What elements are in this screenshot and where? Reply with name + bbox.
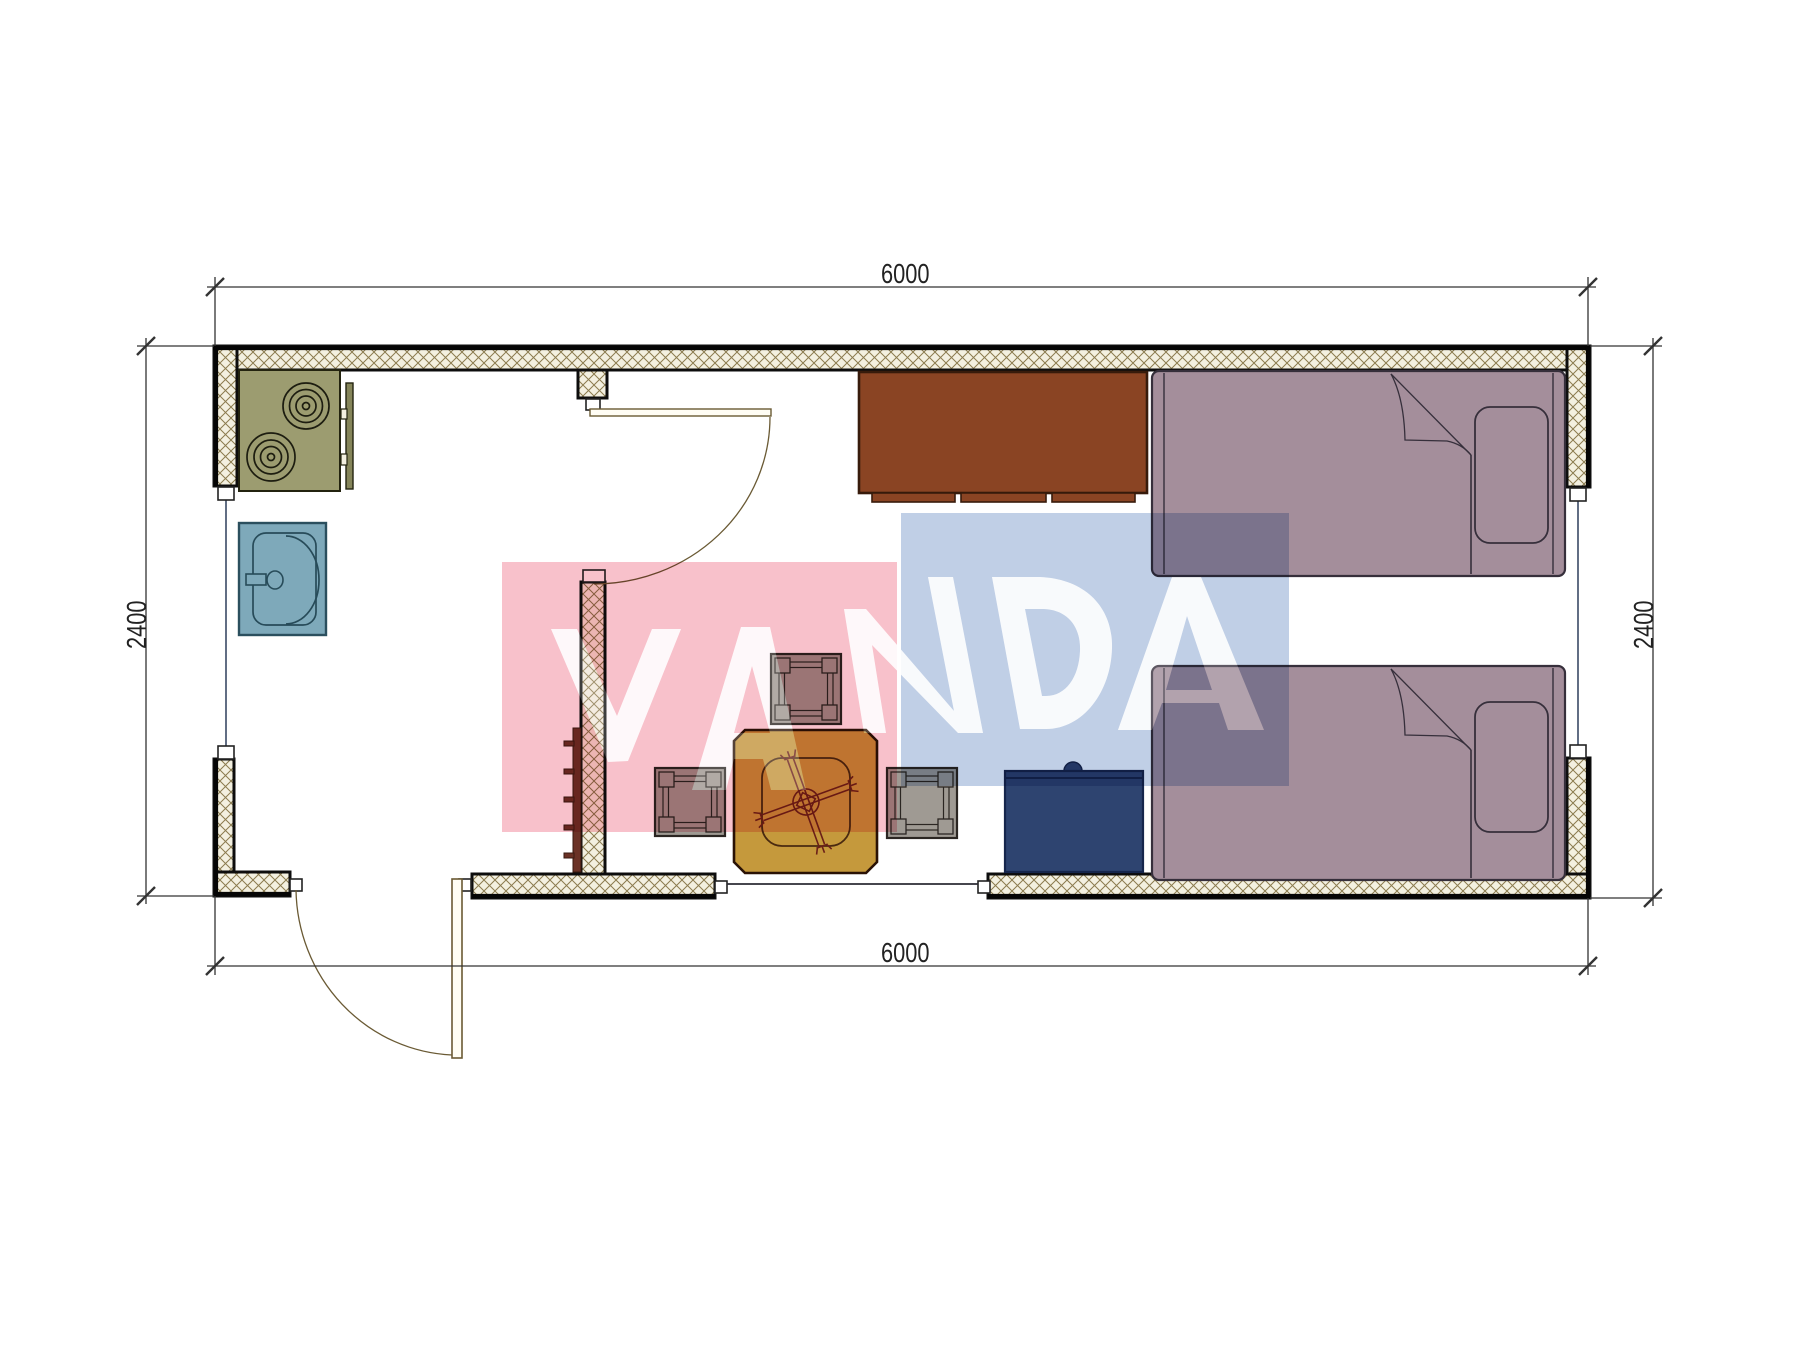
svg-text:6000: 6000 xyxy=(881,937,930,968)
svg-text:6000: 6000 xyxy=(881,258,930,289)
svg-text:2400: 2400 xyxy=(1628,600,1659,649)
svg-text:2400: 2400 xyxy=(121,600,152,649)
